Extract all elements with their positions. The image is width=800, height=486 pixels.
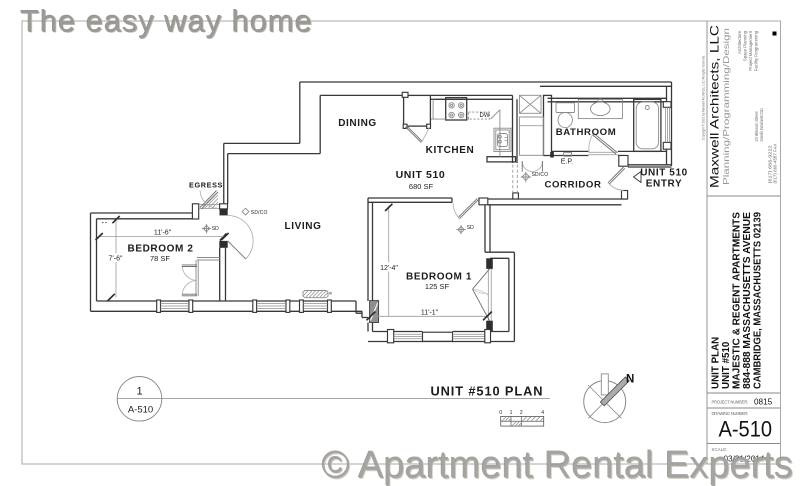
svg-text:SD: SD <box>467 225 474 231</box>
svg-text:2: 2 <box>520 410 523 416</box>
svg-text:4: 4 <box>541 410 544 416</box>
svg-text:Facility Programming: Facility Programming <box>754 30 759 71</box>
svg-text:DINING: DINING <box>338 118 377 129</box>
svg-text:A-510: A-510 <box>128 404 153 415</box>
svg-text:SD/CO: SD/CO <box>532 172 549 178</box>
svg-text:11'-1": 11'-1" <box>421 309 439 316</box>
svg-text:UNIT #510 PLAN: UNIT #510 PLAN <box>431 383 544 398</box>
svg-text:The easy way home: The easy way home <box>21 4 314 39</box>
svg-text:© Apartment Rental Experts: © Apartment Rental Experts <box>322 445 794 486</box>
svg-text:125 SF: 125 SF <box>425 282 450 291</box>
svg-text:1: 1 <box>136 385 142 397</box>
svg-text:0: 0 <box>499 410 502 416</box>
svg-text:PROJECT NUMBER:: PROJECT NUMBER: <box>712 400 749 405</box>
svg-text:0815: 0815 <box>754 398 773 407</box>
svg-text:Project Management: Project Management <box>748 30 753 70</box>
svg-text:Architecture: Architecture <box>737 30 742 54</box>
svg-text:DW: DW <box>480 113 490 119</box>
svg-text:EGRESS: EGRESS <box>189 180 223 189</box>
svg-text:N: N <box>626 374 634 386</box>
svg-text:78 SF: 78 SF <box>150 254 170 263</box>
svg-text:680 SF: 680 SF <box>409 182 434 191</box>
svg-text:Somerville, Massachusetts 0214: Somerville, Massachusetts 02144 <box>759 108 764 141</box>
svg-text:SD: SD <box>212 226 219 232</box>
svg-text:12'-4": 12'-4" <box>380 265 398 272</box>
svg-text:KITCHEN: KITCHEN <box>426 145 475 156</box>
svg-text:BATHROOM: BATHROOM <box>556 127 617 138</box>
svg-text:UNIT 510: UNIT 510 <box>640 168 688 179</box>
svg-text:CORRIDOR: CORRIDOR <box>544 180 601 191</box>
svg-text:884-888 MASSACHUSETTS AVENUE: 884-888 MASSACHUSETTS AVENUE <box>742 212 753 389</box>
svg-text:LIVING: LIVING <box>285 221 322 232</box>
svg-text:Planning/Programming/Design: Planning/Programming/Design <box>721 28 731 185</box>
svg-text:Maxwell Architects, LLC: Maxwell Architects, LLC <box>708 25 722 188</box>
svg-text:SD/CO: SD/CO <box>251 210 268 216</box>
svg-text:1: 1 <box>510 410 513 416</box>
svg-text:Space Planning: Space Planning <box>743 30 748 61</box>
svg-text:UNIT 510: UNIT 510 <box>396 169 446 181</box>
svg-text:Copyright © 2010 by Maxwell Ar: Copyright © 2010 by Maxwell Architects, … <box>702 55 706 140</box>
svg-text:11'-6": 11'-6" <box>154 230 172 237</box>
svg-text:(617) 666-4587 FAX: (617) 666-4587 FAX <box>773 143 778 183</box>
svg-text:MAJESTIC & REGENT APARTMENTS: MAJESTIC & REGENT APARTMENTS <box>732 212 743 389</box>
svg-text:7'-6": 7'-6" <box>109 256 123 263</box>
svg-text:ENTRY: ENTRY <box>646 178 683 189</box>
svg-text:DRAWING NUMBER:: DRAWING NUMBER: <box>712 411 749 416</box>
svg-text:E.P.: E.P. <box>561 159 573 166</box>
svg-text:A-510: A-510 <box>719 417 773 442</box>
svg-text:CAMBRIDGE, MASSACHUSETTS 02139: CAMBRIDGE, MASSACHUSETTS 02139 <box>753 211 764 389</box>
svg-text:UNIT PLAN: UNIT PLAN <box>711 337 722 389</box>
svg-text:UNIT #510: UNIT #510 <box>721 341 732 389</box>
